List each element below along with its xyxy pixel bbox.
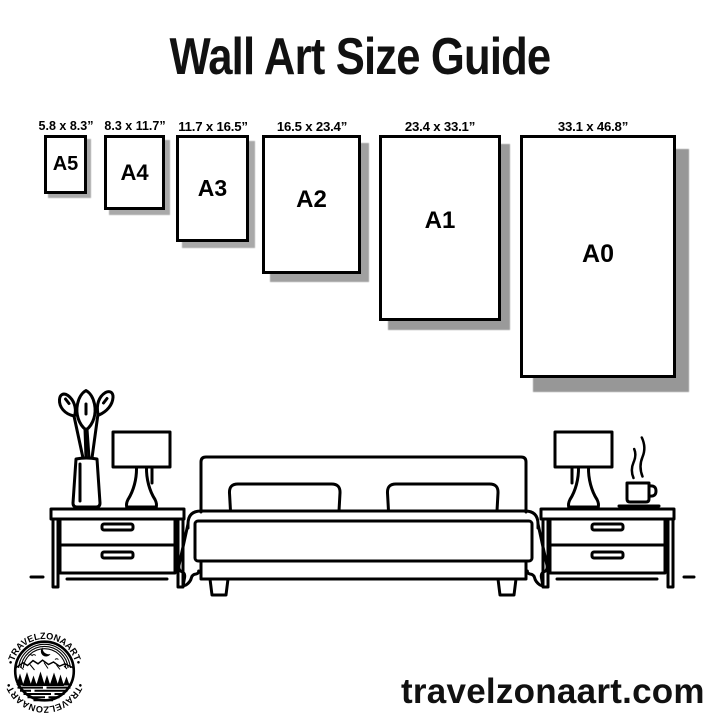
svg-text:•TRAVELZONAART•: •TRAVELZONAART• [4, 682, 86, 715]
